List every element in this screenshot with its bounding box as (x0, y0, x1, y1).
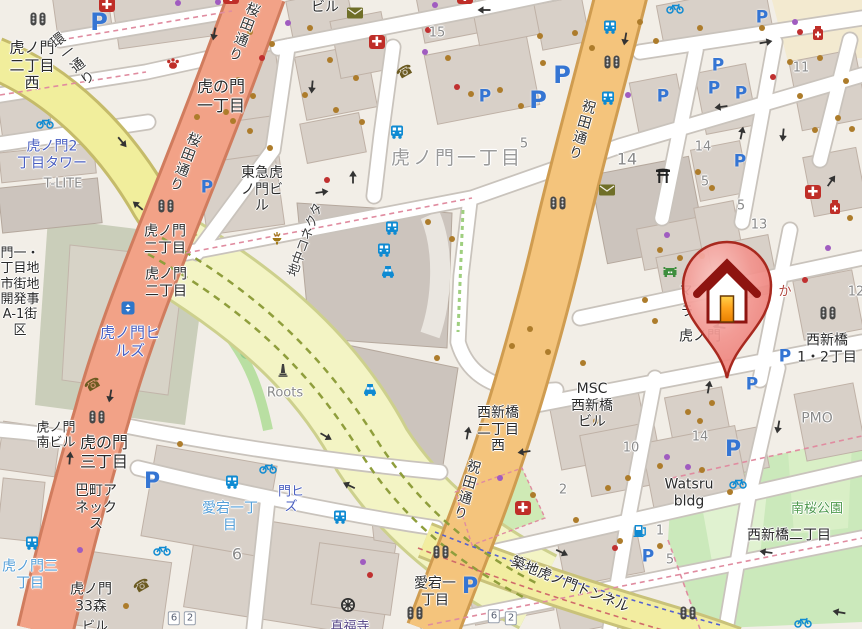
oneway-arrow-icon (777, 127, 788, 145)
building-number: 5 (737, 198, 745, 213)
arcade-icon (663, 266, 678, 278)
bus-icon (603, 20, 618, 35)
poi-dot-brown (697, 25, 703, 31)
poi-dot-brown (230, 118, 236, 124)
fountain-icon (271, 231, 284, 245)
poi-dot-red (770, 74, 776, 80)
poi-dot-brown (843, 78, 849, 84)
oneway-arrow-icon (208, 26, 221, 44)
poi-dot-red (797, 29, 803, 35)
hospital-icon: ✚ (369, 35, 385, 49)
oneway-arrow-icon (756, 546, 774, 558)
building-number: 15 (429, 25, 446, 40)
signal-icon (30, 12, 47, 27)
map-label: 東急虎 ノ門ビ ル (241, 165, 283, 215)
map-label: 門一・ 丁目地 市街地 開発事 A-1街 区 (0, 246, 39, 338)
map-label: MSC 西新橋 ビル (571, 381, 613, 431)
map-label: 虎ノ門 二丁目 西 (9, 39, 54, 92)
poi-dot-brown (307, 25, 313, 31)
poi-dot-purple (215, 0, 221, 5)
poi-dot-brown (589, 45, 595, 51)
poi-dot-brown (425, 219, 431, 225)
oneway-arrow-icon (306, 79, 317, 97)
poi-dot-brown (699, 467, 705, 473)
monument-icon (277, 363, 289, 377)
poi-dot-brown (625, 475, 631, 481)
map-label: 虎ノ門一丁目 (391, 147, 523, 169)
temple-icon (340, 597, 356, 613)
poi-dot-brown (797, 93, 803, 99)
poi-dot-red (324, 177, 330, 183)
building-number: 6 (232, 546, 242, 565)
parking-icon: P (553, 63, 571, 87)
poi-dot-brown (652, 318, 658, 324)
poi-dot-purple (685, 464, 691, 470)
parking-icon: P (529, 88, 547, 112)
signal-icon (158, 199, 175, 214)
oneway-arrow-icon (823, 170, 841, 190)
poi-dot-purple (664, 454, 670, 460)
signal-icon (680, 606, 697, 621)
house-door (721, 296, 734, 322)
poi-dot-brown (527, 326, 533, 332)
building-number: 14 (617, 151, 637, 170)
building-number: 10 (623, 440, 640, 455)
map-label: 虎ノ門 二丁目 (145, 266, 187, 299)
oneway-arrow-icon (475, 5, 492, 15)
map-label: 巴町ア ネック ス (75, 483, 117, 533)
signal-icon (89, 410, 106, 425)
map-label: 愛宕一 丁目 (414, 575, 456, 608)
poi-dot-brown (497, 87, 503, 93)
map-label: 地中コネクタ (286, 201, 327, 279)
oneway-arrow-icon (104, 388, 117, 406)
map-label: か (778, 284, 791, 299)
fuel-icon (633, 523, 647, 537)
hospital-icon: ✚ (99, 0, 115, 12)
oneway-arrow-icon (127, 196, 146, 215)
building-number: 12 (848, 284, 862, 299)
map-label: ビル (82, 619, 108, 629)
hospital-icon: ✚ (223, 0, 239, 4)
map-label: ビル (311, 0, 339, 16)
poi-dot-purple (422, 49, 428, 55)
map-label: 祝田通り (449, 457, 483, 523)
house-marker[interactable] (679, 240, 775, 380)
bicycle-icon (259, 462, 277, 474)
poi-dot-purple (825, 245, 831, 251)
bicycle-icon (666, 2, 684, 14)
bicycle-icon (36, 117, 54, 129)
oneway-arrow-icon (735, 123, 748, 142)
bicycle-icon (729, 477, 747, 489)
taxi-icon (380, 266, 396, 278)
poi-dot-brown (849, 126, 855, 132)
signal-icon (550, 196, 567, 211)
poi-dot-brown (697, 418, 703, 424)
poi-dot-brown (573, 517, 579, 523)
poi-dot-red (454, 84, 460, 90)
poi-dot-brown (657, 463, 663, 469)
map-label: 真福寺 (330, 619, 369, 629)
poi-dot-purple (285, 20, 291, 26)
map-label: 築地虎ノ門トンネル (509, 554, 632, 616)
poi-dot-brown (709, 185, 715, 191)
parking-icon: P (734, 154, 746, 171)
phone-icon: ☎ (396, 65, 413, 79)
map-label: 南桜公園 (791, 501, 843, 516)
building-number: 5 (701, 174, 709, 189)
map-label: 愛宕一丁 目 (202, 500, 258, 533)
poi-dot-brown (359, 119, 365, 125)
signal-icon (433, 545, 450, 560)
poi-dot-brown (545, 349, 551, 355)
poi-dot-brown (530, 492, 536, 498)
signal-icon (820, 306, 837, 321)
poi-dot-red (367, 572, 373, 578)
poi-dot-brown (642, 297, 648, 303)
building-number: 2 (559, 482, 567, 497)
bicycle-icon (153, 544, 171, 556)
house-number: 6 (168, 611, 180, 625)
poi-dot-brown (617, 538, 623, 544)
poi-dot-purple (360, 559, 366, 565)
oneway-arrow-icon (758, 36, 776, 49)
map-label: PMO (801, 411, 833, 428)
oneway-arrow-icon (338, 477, 358, 493)
poi-dot-purple (664, 232, 670, 238)
poi-dot-brown (709, 400, 715, 406)
map-label: 西新橋 二丁目 西 (477, 405, 519, 455)
parking-icon: P (201, 180, 213, 197)
parking-icon: P (708, 81, 720, 98)
building-number: 5 (520, 136, 528, 151)
poi-dot-red (259, 55, 265, 61)
mail-icon (347, 8, 363, 19)
poi-dot-brown (123, 603, 129, 609)
oneway-arrow-icon (829, 606, 847, 619)
signal-icon (604, 55, 621, 70)
bus-icon (601, 91, 616, 106)
building-number: 1 (656, 523, 664, 538)
building-number: 14 (692, 429, 709, 444)
poi-dot-brown (468, 91, 474, 97)
torii-icon (655, 167, 672, 183)
building-number: 11 (793, 60, 810, 75)
poi-dot-brown (537, 33, 543, 39)
house-number: 2 (505, 611, 517, 625)
map-label: 虎ノ門三 丁目 (2, 558, 58, 591)
map-label: 虎ノ門 南ビル (36, 421, 75, 452)
oneway-arrow-icon (114, 133, 133, 152)
parking-icon: P (90, 10, 108, 34)
pharmacy-icon (828, 200, 842, 215)
poi-dot-brown (540, 60, 546, 66)
poi-dot-brown (657, 543, 663, 549)
poi-dot-brown (605, 485, 611, 491)
poi-dot-brown (580, 360, 586, 366)
map-canvas[interactable]: PPPPPPPPPPPPPPPPP✚✚✚✚✚✚☎☎☎虎ノ門 二丁目 西環一通り桜… (0, 0, 862, 629)
phone-icon: ☎ (133, 579, 150, 593)
poi-dot-brown (247, 128, 253, 134)
oneway-arrow-icon (772, 419, 785, 437)
house-number: 2 (184, 611, 196, 625)
building-number: 13 (751, 217, 768, 232)
poi-dot-brown (333, 107, 339, 113)
poi-dot-brown (518, 103, 524, 109)
bus-icon (390, 125, 405, 140)
poi-dot-brown (449, 236, 455, 242)
map-label: 門ヒ ズ (278, 485, 304, 516)
bus-icon (377, 243, 392, 258)
poi-dot-brown (177, 441, 183, 447)
map-label: 桜田通り (224, 0, 262, 65)
hospital-icon: ✚ (515, 501, 531, 515)
parking-icon: P (735, 86, 747, 103)
oneway-arrow-icon (348, 168, 358, 185)
oneway-arrow-icon (619, 31, 632, 49)
poi-dot-brown (509, 343, 515, 349)
poi-dot-purple (77, 547, 83, 553)
parking-icon: P (642, 549, 654, 566)
map-label: 虎ノ門2 丁目タワー (17, 138, 87, 171)
poi-dot-brown (445, 55, 451, 61)
bus-icon (385, 221, 400, 236)
poi-dot-brown (327, 57, 333, 63)
poi-dot-purple (792, 19, 798, 25)
oneway-arrow-icon (317, 428, 337, 445)
bicycle-icon (794, 616, 812, 628)
bus-icon (25, 536, 40, 551)
poi-dot-purple (625, 92, 631, 98)
poi-dot-brown (812, 127, 818, 133)
map-label: 桜田通り (165, 129, 203, 195)
hospital-icon: ✚ (805, 185, 821, 199)
poi-dot-brown (847, 215, 853, 221)
poi-dot-brown (637, 19, 643, 25)
phone-icon: ☎ (84, 378, 101, 392)
hospital-icon: ✚ (457, 0, 473, 4)
parking-icon: P (462, 576, 478, 598)
oneway-arrow-icon (314, 186, 332, 198)
poi-dot-red (802, 277, 808, 283)
map-label: 西新橋二丁目 (747, 528, 831, 545)
poi-dot-brown (685, 409, 691, 415)
taxi-icon (362, 384, 378, 396)
mail-icon (599, 185, 615, 196)
map-label: 虎ノ門 33森 (70, 581, 112, 614)
pharmacy-icon (811, 26, 825, 41)
poi-dot-brown (657, 247, 663, 253)
parking-icon: P (756, 10, 768, 27)
poi-dot-brown (653, 38, 659, 44)
parking-icon: P (657, 89, 669, 106)
oneway-arrow-icon (711, 101, 729, 113)
parking-icon: P (712, 58, 724, 75)
poi-dot-brown (353, 75, 359, 81)
bus-icon (225, 475, 240, 490)
poi-dot-brown (572, 30, 578, 36)
bus-icon (333, 510, 348, 525)
map-label: 祝田通り (564, 97, 598, 163)
map-label: Roots (267, 385, 303, 400)
parking-icon: P (725, 439, 741, 461)
parking-icon: P (779, 349, 791, 366)
map-label: 虎の門 一丁目 (197, 78, 245, 116)
map-label: Watsru bldg (665, 476, 714, 509)
oneway-arrow-icon (462, 423, 475, 441)
poi-dot-red (612, 545, 618, 551)
map-label: 虎ノ門 二丁目 (144, 223, 186, 256)
parking-icon: P (479, 89, 491, 106)
map-label: 虎の門 三丁目 (80, 434, 128, 472)
map-label: 虎ノ門ヒ ルズ (100, 324, 160, 359)
poi-dot-brown (817, 55, 823, 61)
building-number: 14 (695, 139, 712, 154)
elevator-icon (122, 302, 135, 315)
oneway-arrow-icon (553, 545, 573, 561)
poi-dot-purple (497, 475, 503, 481)
poi-dot-brown (727, 489, 733, 495)
veterinary-icon (166, 57, 180, 70)
poi-dot-brown (250, 93, 256, 99)
map-label: 西新橋 1・2丁目 (797, 332, 857, 365)
poi-dot-brown (835, 115, 841, 121)
poi-dot-brown (267, 145, 273, 151)
poi-dot-brown (269, 41, 275, 47)
map-label: T-LITE (44, 176, 83, 191)
parking-icon: P (144, 471, 160, 493)
poi-dot-brown (434, 355, 440, 361)
house-number: 6 (488, 609, 500, 623)
poi-dot-purple (175, 0, 181, 6)
poi-dot-purple (432, 2, 438, 8)
building-number: 5 (666, 552, 674, 567)
